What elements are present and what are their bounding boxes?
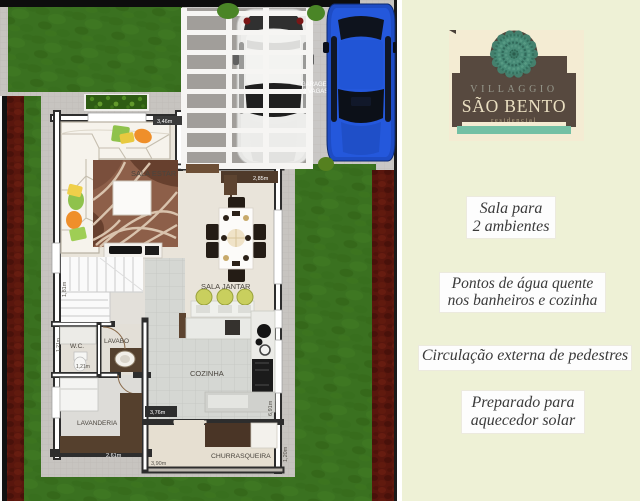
svg-text:VILLAGGIO: VILLAGGIO — [470, 84, 557, 95]
svg-text:6,91m: 6,91m — [268, 400, 274, 416]
svg-text:SALA JANTAR: SALA JANTAR — [201, 282, 251, 291]
svg-text:residencial: residencial — [491, 117, 537, 124]
svg-text:3,90m: 3,90m — [151, 461, 167, 467]
svg-text:COZINHA: COZINHA — [190, 369, 224, 378]
svg-text:W.C.: W.C. — [70, 343, 84, 350]
svg-text:LAVABO: LAVABO — [104, 338, 129, 345]
svg-text:CHURRASQUEIRA: CHURRASQUEIRA — [211, 453, 271, 460]
svg-text:2,85m: 2,85m — [253, 176, 269, 182]
svg-text:1,81m: 1,81m — [62, 281, 68, 297]
svg-text:3,76m: 3,76m — [150, 410, 166, 416]
svg-text:2 VAGAS: 2 VAGAS — [303, 89, 328, 95]
svg-text:SALA ESTAR: SALA ESTAR — [131, 169, 177, 178]
svg-text:1,20m: 1,20m — [283, 446, 289, 462]
svg-text:1,21m: 1,21m — [56, 338, 62, 352]
svg-text:LAVANDERIA: LAVANDERIA — [77, 420, 118, 427]
svg-text:SÃO BENTO: SÃO BENTO — [462, 96, 567, 116]
svg-text:1,21m: 1,21m — [76, 364, 90, 370]
svg-text:2,61m: 2,61m — [106, 453, 122, 459]
svg-text:3,46m: 3,46m — [157, 119, 173, 125]
